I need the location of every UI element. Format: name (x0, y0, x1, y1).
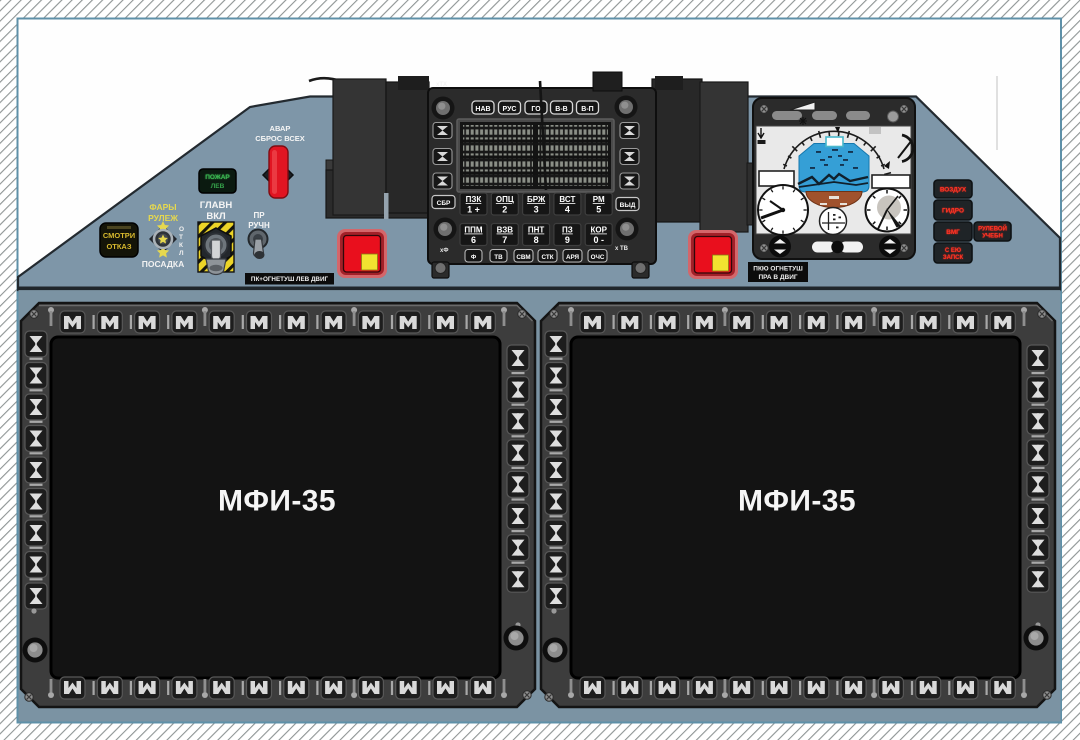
svg-text:СТК: СТК (541, 254, 553, 261)
svg-text:5: 5 (596, 205, 601, 215)
svg-text:Т: Т (179, 234, 183, 241)
svg-text:8: 8 (534, 235, 539, 245)
svg-text:ВЗВ: ВЗВ (497, 226, 514, 235)
svg-text:ПКЮ ОГНЕТУШ: ПКЮ ОГНЕТУШ (753, 266, 803, 273)
svg-text:ПР: ПР (253, 211, 265, 220)
svg-text:ВОЗДУХ: ВОЗДУХ (940, 186, 967, 193)
svg-text:2: 2 (502, 205, 507, 215)
svg-text:СБРОС ВСЕХ: СБРОС ВСЕХ (255, 134, 305, 143)
svg-text:1 +: 1 + (467, 205, 480, 215)
svg-text:РМ: РМ (593, 195, 605, 204)
svg-text:6: 6 (471, 235, 476, 245)
svg-text:ОТКАЗ: ОТКАЗ (106, 242, 131, 251)
svg-text:С ЕЮ: С ЕЮ (945, 248, 961, 254)
svg-text:ГО: ГО (531, 106, 541, 113)
svg-text:ТВ: ТВ (494, 254, 503, 261)
svg-text:ВМГ: ВМГ (946, 229, 960, 236)
svg-text:Л: Л (179, 250, 184, 257)
svg-text:В-В: В-В (555, 106, 567, 113)
svg-text:7: 7 (502, 235, 507, 245)
svg-text:ВЫД: ВЫД (620, 202, 636, 209)
svg-text:ПЗК: ПЗК (466, 195, 482, 204)
svg-text:ФАРЫ: ФАРЫ (149, 202, 176, 212)
svg-text:ПЗ: ПЗ (562, 226, 573, 235)
svg-text:СВМ: СВМ (516, 254, 530, 261)
svg-text:ОПЦ: ОПЦ (496, 195, 514, 204)
svg-text:О: О (179, 226, 184, 233)
svg-text:АРЯ: АРЯ (566, 254, 580, 261)
svg-text:ГЛАВН: ГЛАВН (200, 200, 233, 211)
svg-text:ПОСАДКА: ПОСАДКА (142, 259, 184, 269)
svg-text:ПНТ: ПНТ (528, 226, 545, 235)
svg-text:ПОЖАР: ПОЖАР (205, 174, 230, 181)
svg-text:РУЛЕВОЙ: РУЛЕВОЙ (978, 224, 1007, 232)
svg-text:РУС: РУС (503, 106, 517, 113)
svg-text:0 -: 0 - (593, 235, 604, 245)
svg-text:3: 3 (534, 205, 539, 215)
svg-text:ЛЕВ: ЛЕВ (211, 183, 225, 190)
svg-text:хФ: хФ (440, 248, 448, 254)
svg-text:ППМ: ППМ (464, 226, 483, 235)
svg-text:АВАР: АВАР (270, 124, 291, 133)
svg-text:ПК+ОГНЕТУШ ЛЕВ ДВИГ: ПК+ОГНЕТУШ ЛЕВ ДВИГ (251, 276, 329, 283)
svg-text:НАВ: НАВ (475, 106, 490, 113)
svg-text:К: К (179, 242, 183, 249)
svg-text:ВКЛ: ВКЛ (206, 211, 226, 222)
svg-text:ВСТ: ВСТ (559, 195, 575, 204)
svg-text:СМОТРИ: СМОТРИ (103, 231, 135, 240)
svg-text:ЗАПСК: ЗАПСК (943, 255, 964, 261)
svg-text:ОЧС: ОЧС (591, 254, 605, 261)
svg-text:хТХ: хТХ (436, 82, 447, 88)
svg-text:БРЖ: БРЖ (527, 195, 546, 204)
svg-text:4: 4 (565, 205, 570, 215)
svg-text:КОР: КОР (590, 226, 607, 235)
svg-text:В-П: В-П (581, 106, 593, 113)
svg-text:ПРА В ДВИГ: ПРА В ДВИГ (758, 274, 797, 281)
svg-text:х ТВ: х ТВ (615, 246, 629, 252)
svg-text:ГИДРО: ГИДРО (942, 207, 964, 214)
svg-text:Ф: Ф (471, 254, 477, 261)
svg-text:9: 9 (565, 235, 570, 245)
svg-text:УЧЕБН: УЧЕБН (982, 234, 1003, 240)
svg-text:СБР: СБР (437, 200, 451, 207)
